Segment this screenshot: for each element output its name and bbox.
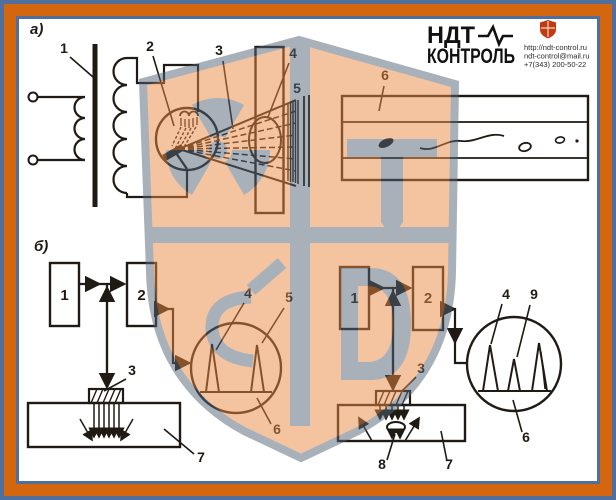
callout-8-defect: 8	[378, 456, 386, 472]
defect-dot	[575, 139, 578, 142]
generator-box-digit: 1	[60, 287, 68, 304]
callout-1-transformer: 1	[60, 40, 68, 56]
section-b-label: б)	[34, 238, 48, 255]
callout-2-tube: 2	[146, 38, 154, 54]
callout-7-test-piece-r: 7	[445, 456, 453, 472]
cross-horizontal-band	[140, 227, 464, 243]
trefoil-center	[209, 141, 227, 159]
callout-7-test-piece: 7	[197, 449, 205, 465]
callout-4-initial-pulse-r: 4	[502, 286, 510, 302]
callout-3-transducer: 3	[128, 362, 136, 378]
brand-line2: КОНТРОЛЬ	[427, 45, 515, 68]
callout-9-defect-echo: 9	[530, 286, 538, 302]
scanned-diagram-page: а)	[0, 0, 616, 500]
section-a-label: а)	[30, 21, 43, 38]
callout-3-beam: 3	[215, 42, 223, 58]
amplifier-box-digit: 2	[137, 287, 145, 304]
callout-6-screen-r: 6	[522, 429, 530, 445]
brand-phone: +7(343) 200-50-22	[524, 60, 586, 69]
